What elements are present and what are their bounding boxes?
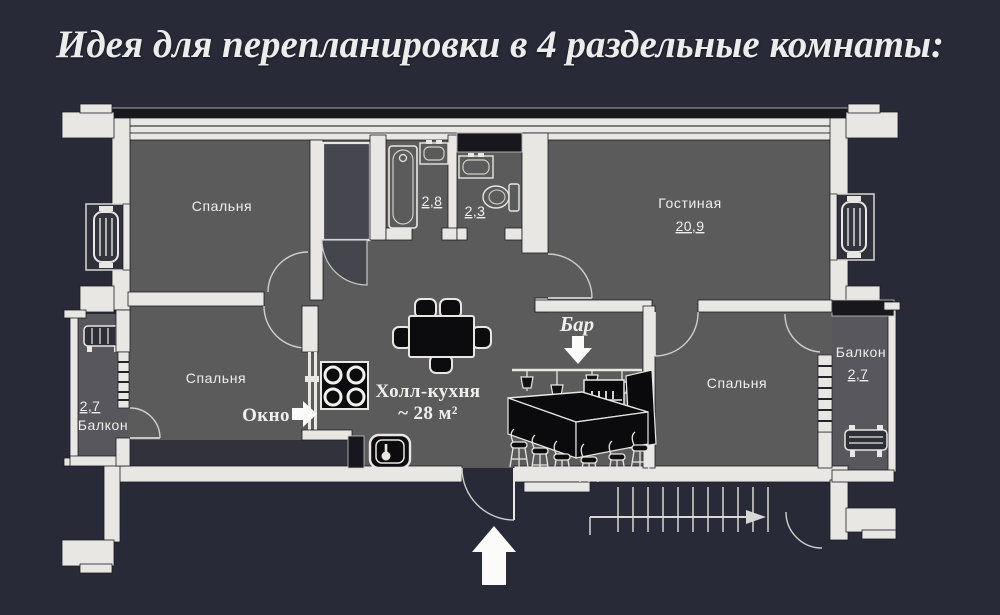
window-recess-right bbox=[830, 194, 874, 260]
left-lower-wall bbox=[104, 462, 120, 542]
wc-bottom-wall-stub bbox=[457, 228, 467, 240]
bathroom-area: 2,8 bbox=[422, 193, 443, 209]
stove-icon bbox=[321, 362, 368, 409]
bathroom-left-wall bbox=[370, 135, 386, 240]
bedroom2-label: Спальня bbox=[186, 370, 246, 386]
pilaster-bottom-right-step bbox=[862, 530, 896, 539]
window-recess-left bbox=[86, 204, 130, 270]
bedroom2-right-wall-upper bbox=[302, 306, 318, 352]
bathroom-bottom-wall-stub bbox=[442, 228, 457, 240]
entrance-arrow-icon bbox=[472, 526, 516, 585]
living-room-label: Гостиная bbox=[658, 195, 722, 211]
wardrobe bbox=[323, 143, 370, 240]
pilaster-bottom-left bbox=[62, 540, 114, 566]
living-bedroom-divider-right bbox=[698, 300, 832, 312]
wall-stub-black bbox=[348, 436, 364, 468]
door-arc bbox=[462, 468, 514, 520]
balcony-right-bottom-wall bbox=[832, 470, 894, 482]
balcony-right-label: Балкон bbox=[836, 344, 887, 360]
window-annotation: Окно bbox=[242, 405, 290, 426]
bedrooms-divider-wall bbox=[128, 292, 264, 306]
pilaster-top-left-step bbox=[80, 104, 112, 113]
balcony-right-cap-top bbox=[884, 302, 900, 310]
new-window-line bbox=[314, 352, 317, 433]
dining-table-icon bbox=[409, 316, 474, 357]
hall-kitchen-area: ~ 28 м² bbox=[398, 403, 458, 424]
staircase bbox=[590, 487, 768, 535]
hall-kitchen-label: Холл-кухня bbox=[376, 381, 481, 402]
new-window-sill bbox=[305, 376, 319, 382]
kitchen-bottom-wall bbox=[302, 430, 352, 440]
balcony-left-cap-top bbox=[64, 310, 86, 318]
balcony-left-area: 2,7 bbox=[80, 398, 101, 414]
bottom-wall-right bbox=[514, 466, 848, 482]
bedroom3-balcony-window bbox=[818, 355, 832, 432]
living-bedroom-divider-left bbox=[535, 300, 652, 312]
door-arc bbox=[786, 512, 822, 548]
radiator-icon bbox=[842, 196, 866, 258]
pilaster-top-right-step bbox=[848, 104, 880, 113]
recess-dark-strip bbox=[128, 440, 348, 468]
living-room-area: 20,9 bbox=[676, 218, 705, 234]
kitchen-sink-icon bbox=[370, 435, 410, 468]
pilaster-bottom-left-step bbox=[80, 564, 112, 573]
balcony-right-area: 2,7 bbox=[848, 366, 869, 382]
balcony-right-outer-wall bbox=[888, 310, 896, 472]
window-glass bbox=[123, 204, 130, 270]
pilaster-bottom-right bbox=[846, 508, 896, 532]
bedroom3-label: Спальня bbox=[707, 375, 767, 391]
window-glass bbox=[830, 194, 837, 260]
bedroom2-balcony-window bbox=[118, 352, 129, 408]
bedroom3-right-wall-lower bbox=[818, 432, 832, 468]
pilaster-top-right bbox=[846, 112, 898, 138]
stairwell-wall bbox=[524, 482, 590, 492]
balcony-left-label: Балкон bbox=[78, 417, 129, 433]
wc-area: 2,3 bbox=[465, 203, 486, 219]
pilaster-top-left bbox=[62, 112, 114, 138]
pilaster-mid-left bbox=[80, 286, 114, 312]
bedroom1-right-wall bbox=[310, 140, 323, 300]
balcony-left-outer-wall bbox=[70, 314, 78, 466]
bathroom-bottom-wall bbox=[386, 228, 412, 240]
bedroom2-left-wall-upper bbox=[116, 310, 130, 352]
bar-annotation: Бар bbox=[559, 312, 594, 336]
wc-right-thick-wall bbox=[522, 133, 548, 253]
radiator-icon bbox=[94, 206, 118, 268]
floor-plan: Спальня Гостиная 20,9 2,8 2,3 Спальня Сп… bbox=[0, 0, 1000, 615]
wc-bottom-wall bbox=[505, 228, 522, 240]
bottom-wall-left bbox=[112, 466, 462, 482]
entrance-and-stairs bbox=[462, 468, 822, 585]
bedroom1-label: Спальня bbox=[192, 198, 252, 214]
right-lower-wall bbox=[830, 480, 848, 540]
ventilation-shaft bbox=[457, 133, 522, 152]
bedroom2-left-wall-lower bbox=[116, 438, 130, 466]
stairs-direction-arrow-icon bbox=[746, 510, 766, 524]
bathroom-right-wall bbox=[448, 135, 457, 240]
